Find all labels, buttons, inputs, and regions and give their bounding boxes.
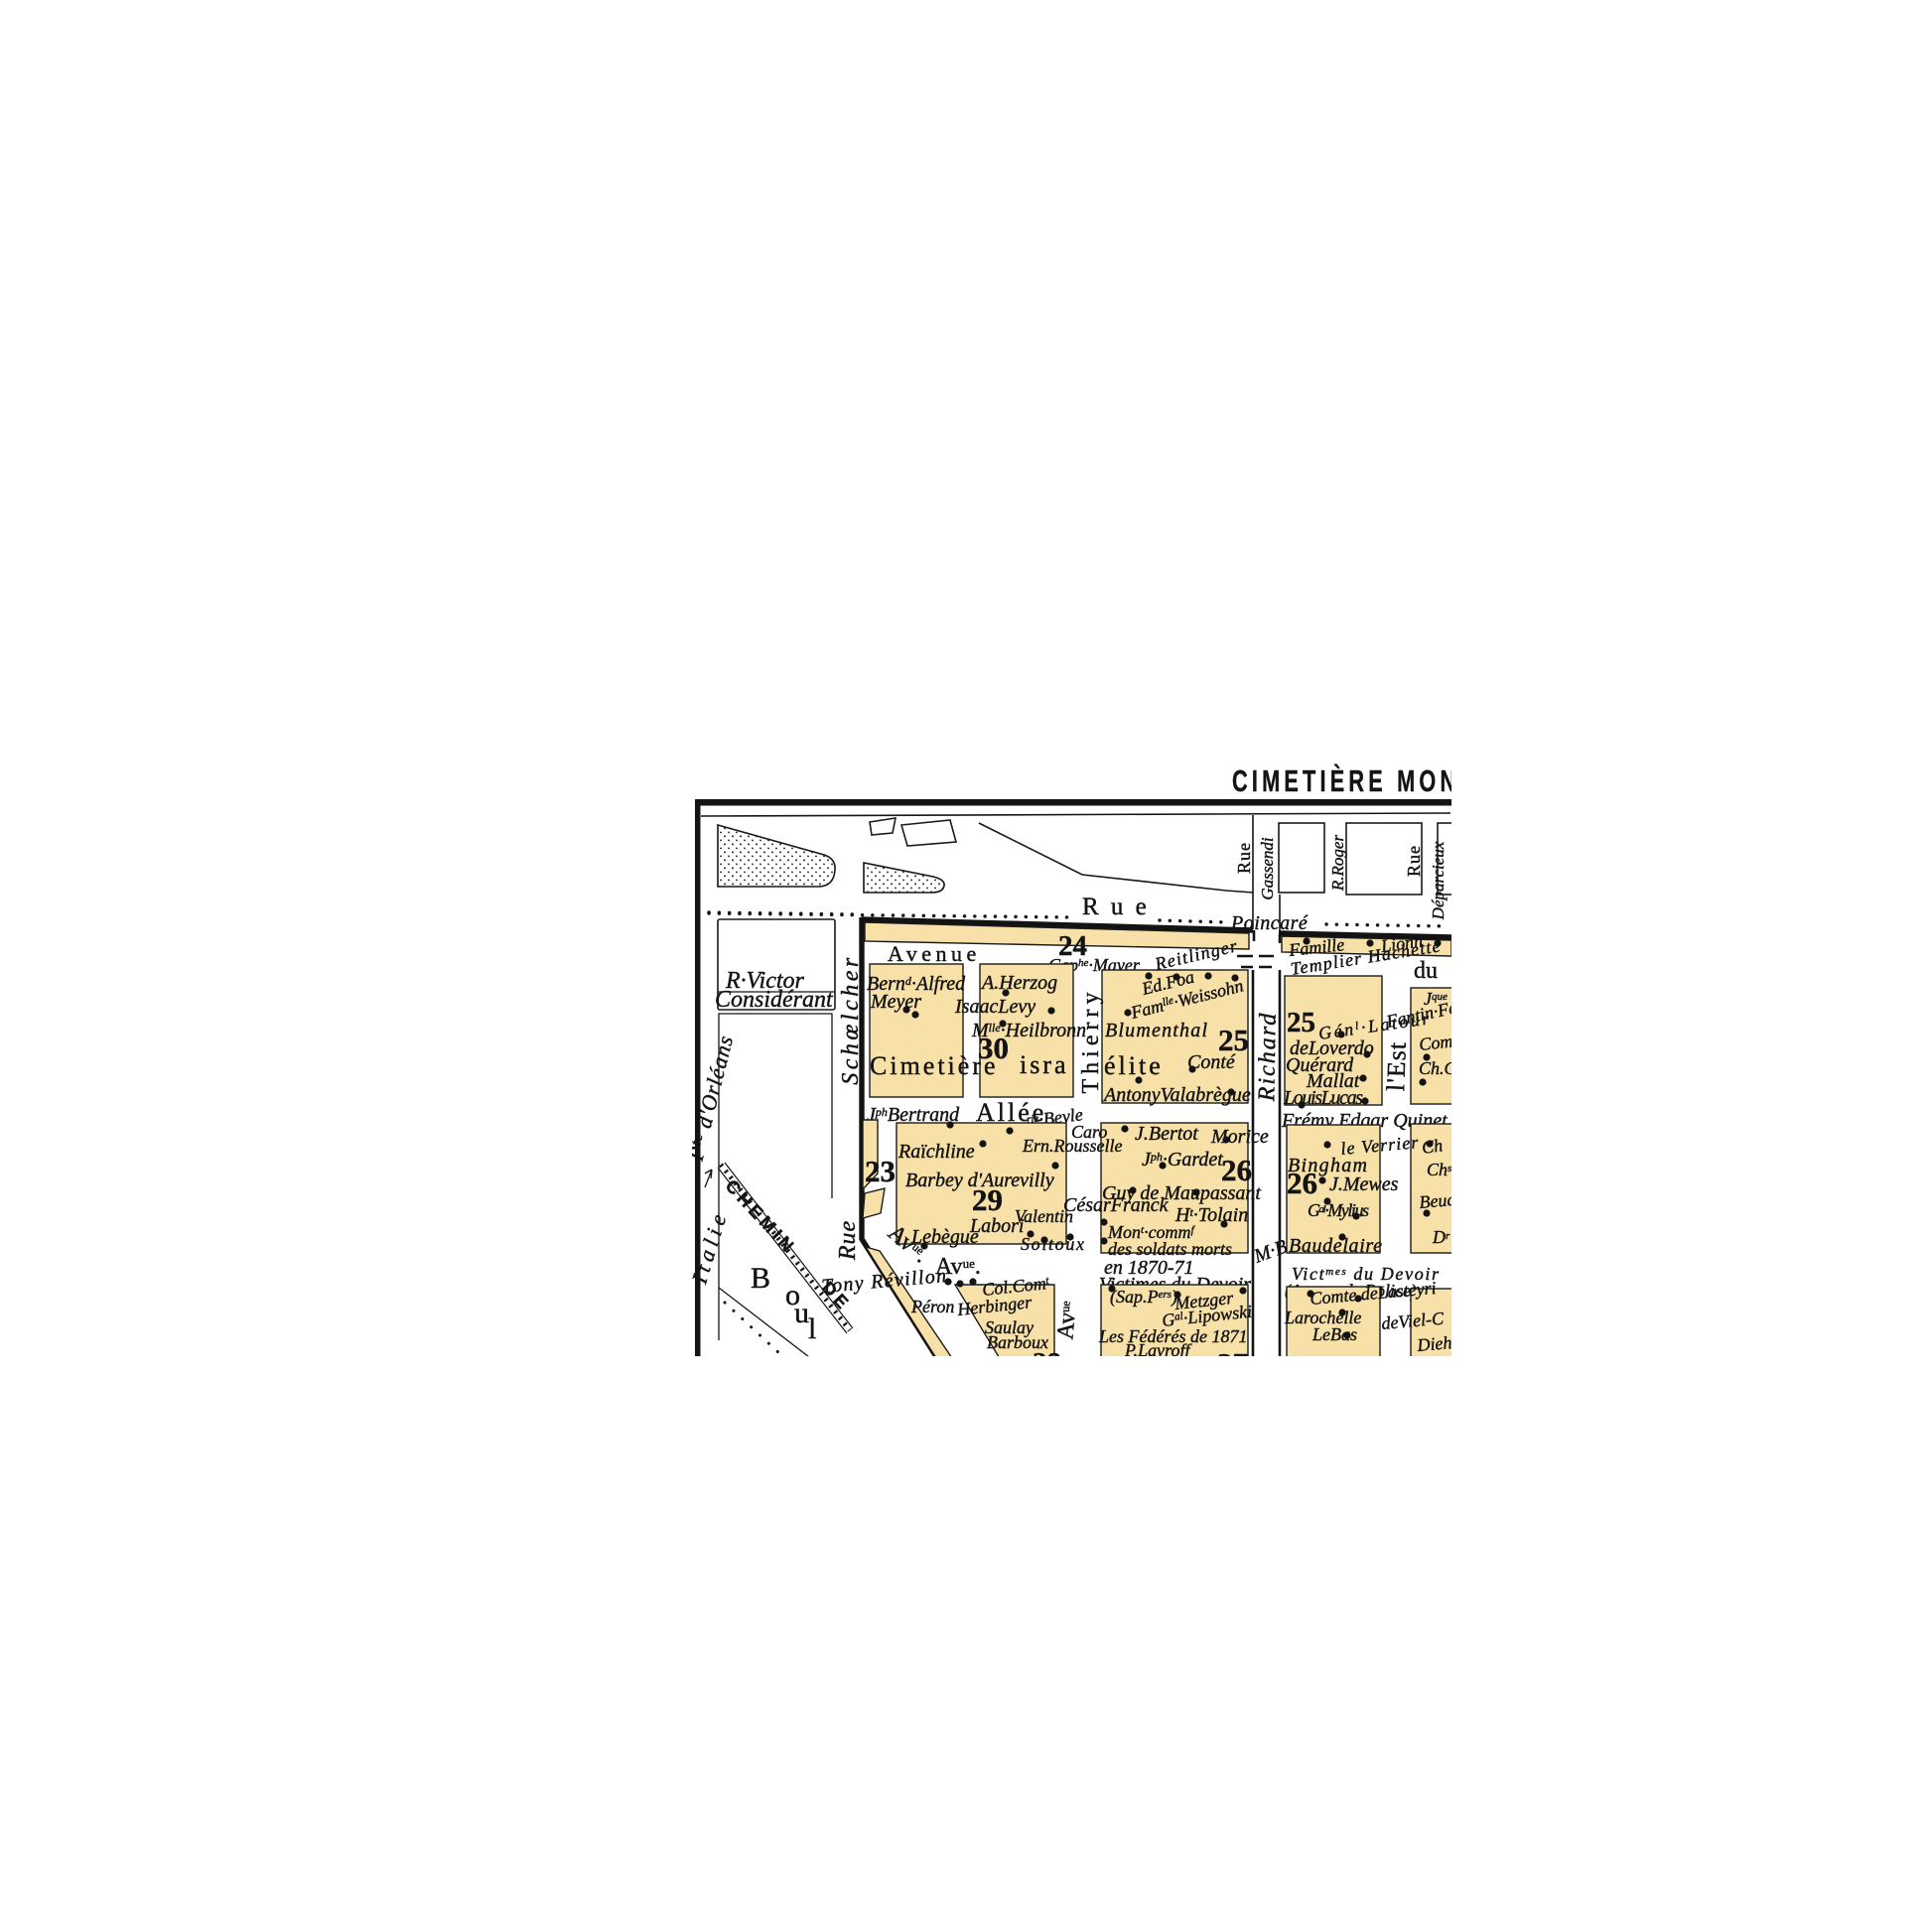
svg-text:Rue: Rue xyxy=(1404,845,1424,877)
svg-text:Richard: Richard xyxy=(1254,1012,1282,1103)
svg-text:l'Est: l'Est xyxy=(1381,1040,1412,1091)
svg-text:Avenue: Avenue xyxy=(888,941,981,966)
svg-text:Schœlcher: Schœlcher xyxy=(838,954,864,1084)
svg-text:Gal·Mylius: Gal·Mylius xyxy=(1308,1200,1369,1220)
svg-text:u: u xyxy=(794,1297,809,1329)
svg-text:Considérant: Considérant xyxy=(715,987,834,1013)
svg-text:J.Bertot: J.Bertot xyxy=(1135,1123,1198,1145)
svg-text:A.Herzog: A.Herzog xyxy=(980,972,1057,994)
svg-text:Cimetière: Cimetière xyxy=(870,1051,999,1080)
svg-text:Ch.G: Ch.G xyxy=(1419,1058,1457,1078)
svg-text:Rue: Rue xyxy=(835,1220,861,1261)
svg-text:Morice: Morice xyxy=(1210,1126,1269,1148)
svg-text:26: 26 xyxy=(1287,1166,1317,1200)
svg-text:Déparcieux: Déparcieux xyxy=(1429,841,1448,920)
svg-text:Ch: Ch xyxy=(1421,1135,1445,1158)
svg-text:23: 23 xyxy=(865,1154,896,1188)
svg-text:Péron: Péron xyxy=(910,1297,954,1316)
svg-text:isra: isra xyxy=(1020,1050,1069,1079)
svg-text:Avue.: Avue. xyxy=(935,1254,981,1280)
svg-text:CIMETIÈRE MON: CIMETIÈRE MON xyxy=(1232,762,1459,798)
svg-text:CésarFranck: CésarFranck xyxy=(1063,1194,1170,1216)
svg-text:25: 25 xyxy=(1287,1007,1315,1038)
svg-text:Raïchline: Raïchline xyxy=(897,1141,975,1163)
svg-text:élite: élite xyxy=(1104,1051,1164,1080)
svg-text:29: 29 xyxy=(972,1182,1003,1217)
svg-text:J.Mewes: J.Mewes xyxy=(1329,1173,1399,1195)
svg-text:Dieh: Dieh xyxy=(1416,1332,1453,1355)
svg-text:du: du xyxy=(1414,958,1438,984)
svg-text:R u e: R u e xyxy=(1082,894,1150,920)
svg-text:Meyer: Meyer xyxy=(870,991,921,1013)
svg-text:B: B xyxy=(751,1262,770,1295)
svg-text:Ern.Rousselle: Ern.Rousselle xyxy=(1022,1136,1123,1156)
svg-text:IsaacLevy: IsaacLevy xyxy=(954,996,1035,1018)
svg-text:Baudelaire: Baudelaire xyxy=(1289,1235,1382,1257)
svg-text:Gassendi: Gassendi xyxy=(1258,837,1277,900)
svg-text:l: l xyxy=(808,1312,816,1345)
svg-text:Blumenthal: Blumenthal xyxy=(1105,1020,1207,1041)
svg-text:Rue: Rue xyxy=(1234,842,1254,874)
svg-text:R.Roger: R.Roger xyxy=(1328,835,1347,893)
svg-text:des soldats morts: des soldats morts xyxy=(1108,1239,1232,1259)
svg-text:AntonyValabrègue: AntonyValabrègue xyxy=(1102,1084,1251,1106)
svg-text:LouisLucas: LouisLucas xyxy=(1283,1087,1363,1109)
